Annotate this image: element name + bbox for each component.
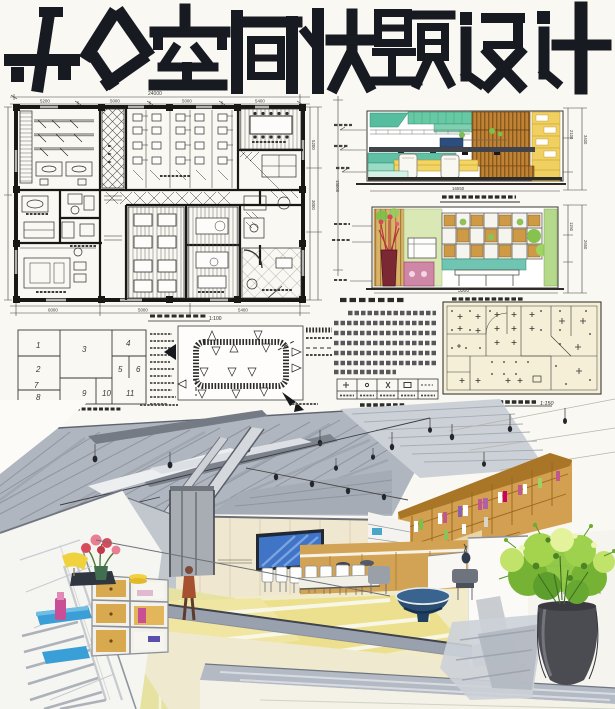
svg-text:3: 3 [82,345,87,354]
svg-text:1:150: 1:150 [540,401,554,407]
svg-text:5400: 5400 [238,308,248,313]
svg-text:5: 5 [118,365,123,374]
svg-text:1:100: 1:100 [209,316,222,322]
svg-text:5000: 5000 [138,308,148,313]
svg-text:3000: 3000 [311,200,316,210]
svg-text:2650: 2650 [583,240,588,250]
svg-text:6: 6 [136,365,141,374]
svg-text:11: 11 [126,389,134,398]
svg-text:2: 2 [35,365,41,374]
svg-text:7: 7 [34,381,39,390]
svg-text:24000: 24000 [148,91,162,97]
svg-text:1: 1 [36,341,40,350]
svg-text:4: 4 [126,339,131,348]
svg-text:5200: 5200 [40,99,50,104]
svg-text:16550: 16550 [452,186,465,191]
svg-text:6000: 6000 [48,308,58,313]
svg-text:10: 10 [102,389,111,398]
svg-text:15000: 15000 [335,180,340,193]
svg-text:5400: 5400 [255,99,265,104]
svg-text:2100: 2100 [569,130,574,140]
svg-text:5000: 5000 [110,99,120,104]
svg-text:5000: 5000 [182,99,192,104]
svg-text:1150: 1150 [569,222,574,232]
svg-text:3400: 3400 [583,135,588,145]
svg-text:9: 9 [82,389,87,398]
svg-text:3300: 3300 [458,288,469,294]
svg-text:5200: 5200 [311,140,316,150]
